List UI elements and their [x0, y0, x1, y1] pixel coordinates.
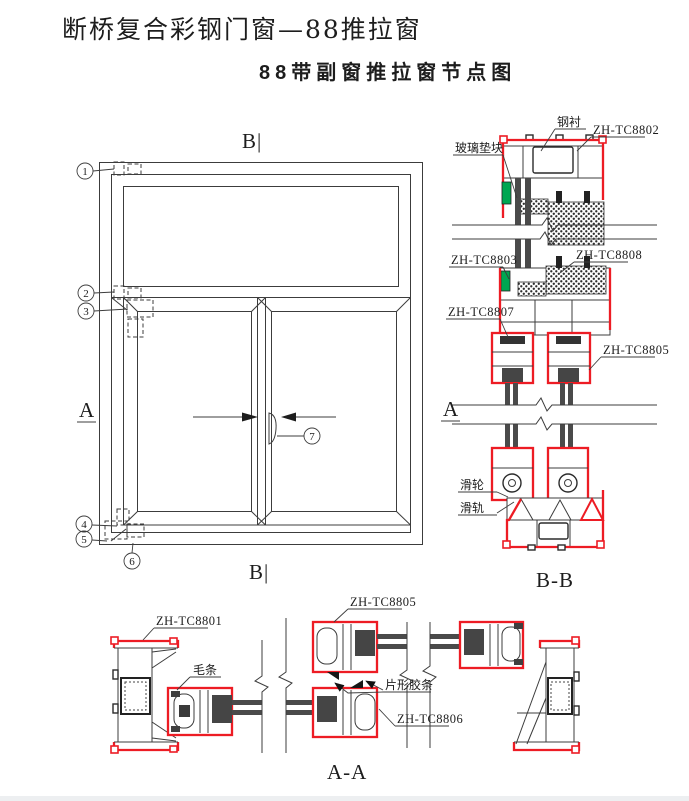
break-symbol-lower	[452, 398, 657, 430]
section-aa-drawing: ZH-TC8801 毛条 ZH-TC8805 片形胶条 ZH-TC8806 A-…	[111, 595, 579, 784]
window-frame	[100, 163, 423, 545]
section-mark-b-top: B|	[242, 129, 262, 153]
sash-bottom-profile-right	[548, 448, 588, 500]
label-tc8801: ZH-TC8801	[156, 614, 222, 628]
page-title: 断桥复合彩钢门窗—88推拉窗	[62, 15, 422, 44]
interlock-profile-bottom	[313, 680, 377, 737]
insulation-hatch-small	[520, 199, 548, 214]
section-bb-drawing: 钢衬 ZH-TC8802 玻璃垫块 ZH-TC8803 ZH-TC8808 ZH…	[441, 115, 669, 592]
section-bb-title: B-B	[536, 568, 574, 592]
callout-2: 2	[83, 288, 89, 300]
slide-direction-arrows	[193, 413, 336, 422]
gasket-under-top-profile	[327, 672, 339, 680]
elevation-drawing: B| B| A	[76, 129, 423, 584]
label-tc8802: ZH-TC8802	[593, 123, 659, 137]
callout-3: 3	[83, 306, 89, 318]
label-tc8803: ZH-TC8803	[451, 253, 517, 267]
label-steel-liner: 钢衬	[557, 115, 581, 129]
window-handle	[269, 413, 276, 444]
sash-top-profile-right	[548, 333, 590, 383]
callout-7: 7	[309, 431, 315, 443]
roller-wheel-right	[559, 474, 577, 492]
break-lines-left	[255, 618, 292, 753]
upper-fixed-pane	[124, 187, 399, 287]
steel-liner	[533, 147, 573, 173]
left-sliding-sash	[124, 298, 266, 526]
section-mark-a-bb: A	[443, 397, 459, 421]
glass-pane-sashes	[505, 383, 573, 454]
glazing-block-green	[502, 182, 511, 204]
glazing-channel-right	[548, 678, 572, 714]
insulation-hatch-transom	[546, 266, 606, 294]
interlock-profile-top	[313, 622, 377, 680]
section-aa-title: A-A	[327, 760, 367, 784]
roller-wheel-left	[503, 474, 521, 492]
label-tc8808: ZH-TC8808	[576, 248, 642, 262]
callout-5: 5	[81, 534, 87, 546]
callout-4: 4	[81, 519, 87, 531]
section-mark-b-bottom: B|	[249, 560, 269, 584]
gasket-over-bottom-profile	[350, 680, 363, 688]
detail-dashed-boxes	[105, 162, 153, 541]
bottom-frame-profile	[503, 490, 604, 550]
glazing-block-green-2	[501, 271, 510, 291]
sash-profile-right	[460, 622, 523, 668]
callout-1: 1	[82, 166, 88, 178]
page-bottom-edge	[0, 796, 689, 801]
callout-bubbles: 1 2 3 4 5 6 7	[76, 163, 320, 569]
window-node-drawing: 断桥复合彩钢门窗—88推拉窗 88带副窗推拉窗节点图 B| B| A	[0, 0, 689, 801]
glass-run-upper	[377, 634, 460, 649]
brush-seal-tuft	[171, 691, 180, 697]
callout-6: 6	[129, 556, 135, 568]
right-sliding-sash	[258, 298, 411, 526]
sash-top-profile-left	[492, 333, 533, 383]
glass-run-lower	[232, 700, 313, 715]
page-subtitle: 88带副窗推拉窗节点图	[259, 60, 516, 84]
section-mark-a-left: A	[79, 398, 95, 422]
label-tc8805-bb: ZH-TC8805	[603, 343, 669, 357]
label-brush-seal: 毛条	[193, 663, 217, 677]
sash-profile-left	[168, 688, 232, 735]
label-tc8807: ZH-TC8807	[448, 305, 514, 319]
label-tc8805-aa: ZH-TC8805	[350, 595, 416, 609]
label-glazing-shim: 玻璃垫块	[455, 140, 503, 155]
label-sheet-gasket: 片形胶条	[385, 677, 433, 692]
label-tc8806: ZH-TC8806	[397, 712, 463, 726]
label-roller: 滑轮	[460, 478, 484, 492]
drawing-sheet: 断桥复合彩钢门窗—88推拉窗 88带副窗推拉窗节点图 B| B| A	[0, 0, 689, 801]
glass-pane-upper	[515, 178, 531, 270]
label-rail: 滑轨	[460, 501, 484, 515]
